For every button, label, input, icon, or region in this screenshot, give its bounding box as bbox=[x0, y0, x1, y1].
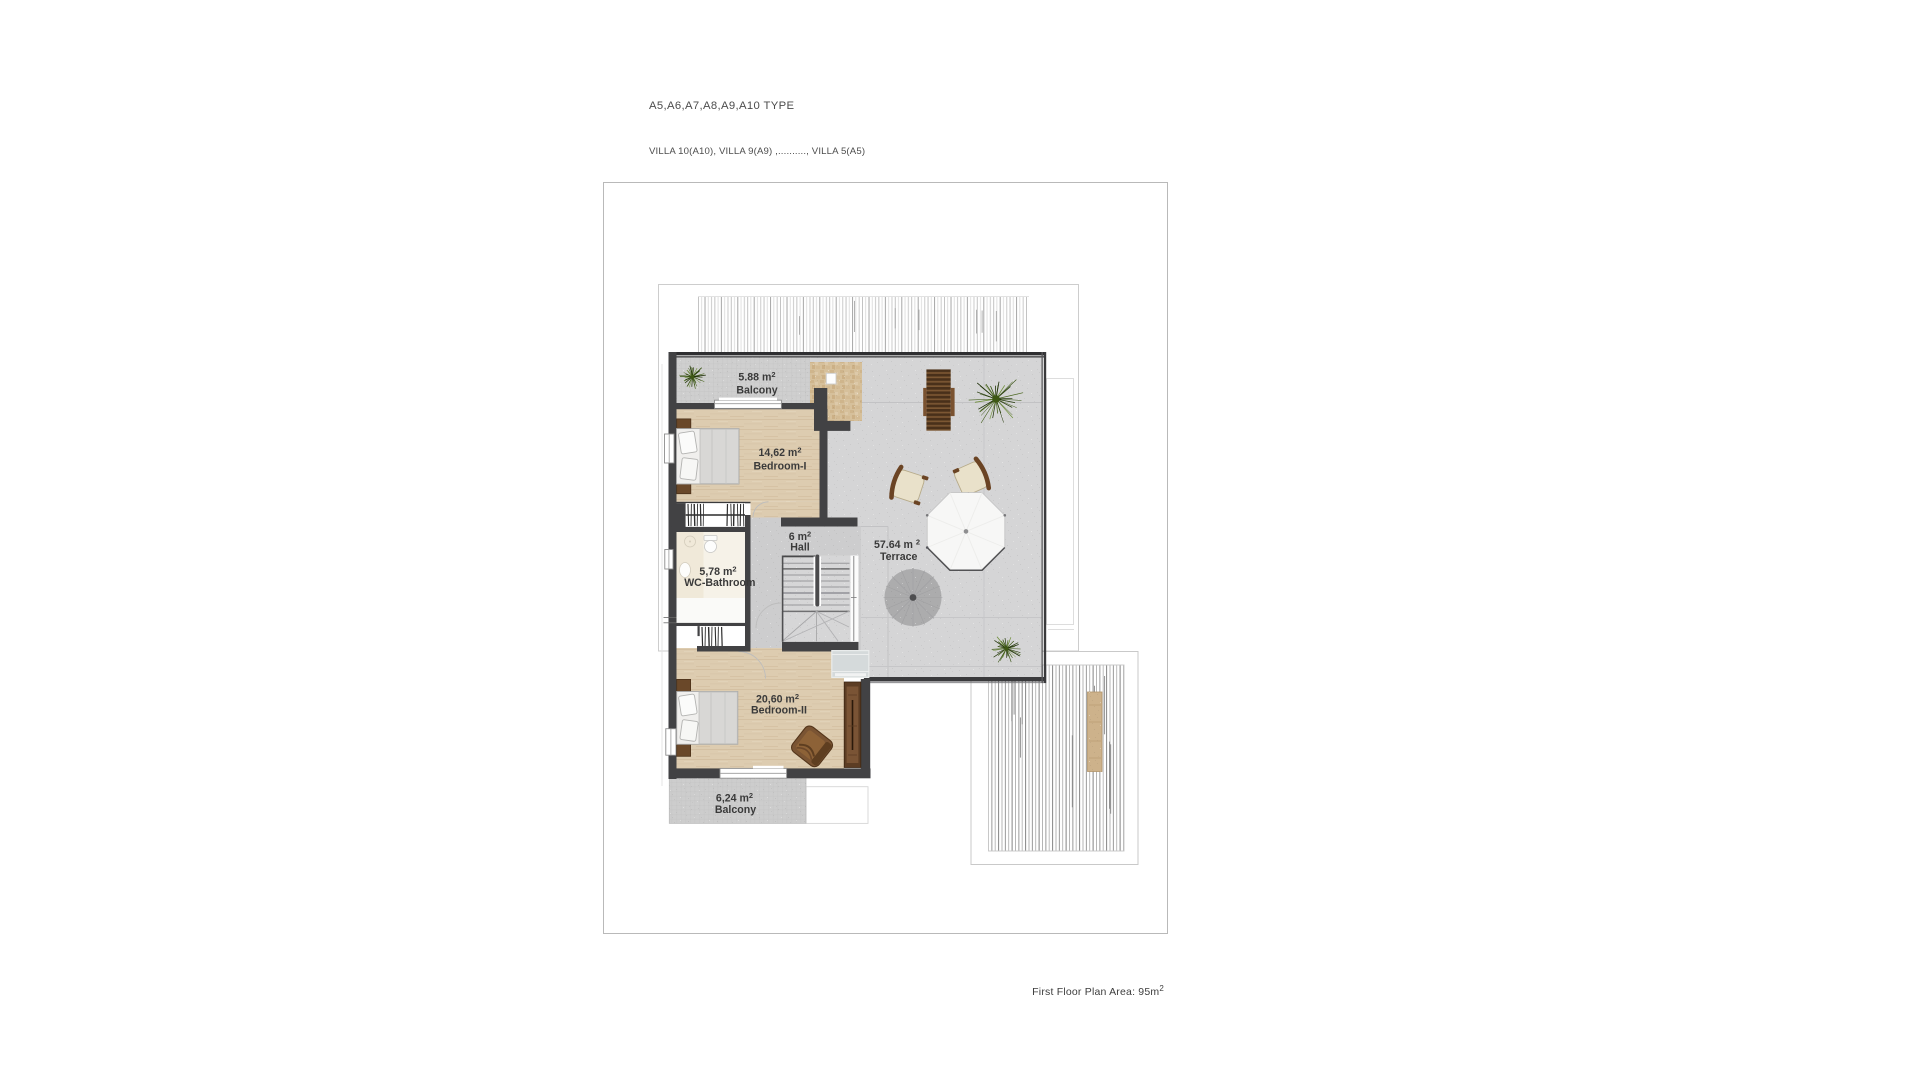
svg-text:Bedroom-I: Bedroom-I bbox=[754, 461, 807, 473]
svg-text:Bedroom-II: Bedroom-II bbox=[751, 705, 807, 717]
svg-text:57.64 m 2: 57.64 m 2 bbox=[874, 538, 920, 552]
svg-text:5,78 m2: 5,78 m2 bbox=[699, 565, 736, 579]
svg-text:6,24 m2: 6,24 m2 bbox=[716, 791, 753, 805]
svg-text:First Floor Plan Area: 95m2: First Floor Plan Area: 95m2 bbox=[1032, 984, 1164, 998]
svg-text:5.88 m2: 5.88 m2 bbox=[738, 370, 775, 384]
svg-text:Balcony: Balcony bbox=[736, 385, 777, 397]
svg-text:Balcony: Balcony bbox=[715, 804, 756, 816]
svg-text:VILLA 10(A10), VILLA 9(A9) ,..: VILLA 10(A10), VILLA 9(A9) ,.........., … bbox=[649, 146, 865, 157]
svg-text:14,62 m2: 14,62 m2 bbox=[758, 446, 801, 460]
svg-text:Terrace: Terrace bbox=[880, 551, 918, 563]
svg-text:Hall: Hall bbox=[790, 542, 809, 554]
svg-text:A5,A6,A7,A8,A9,A10 TYPE: A5,A6,A7,A8,A9,A10 TYPE bbox=[649, 100, 794, 112]
svg-text:WC-Bathroom: WC-Bathroom bbox=[684, 577, 755, 589]
svg-text:20,60 m2: 20,60 m2 bbox=[756, 692, 799, 706]
